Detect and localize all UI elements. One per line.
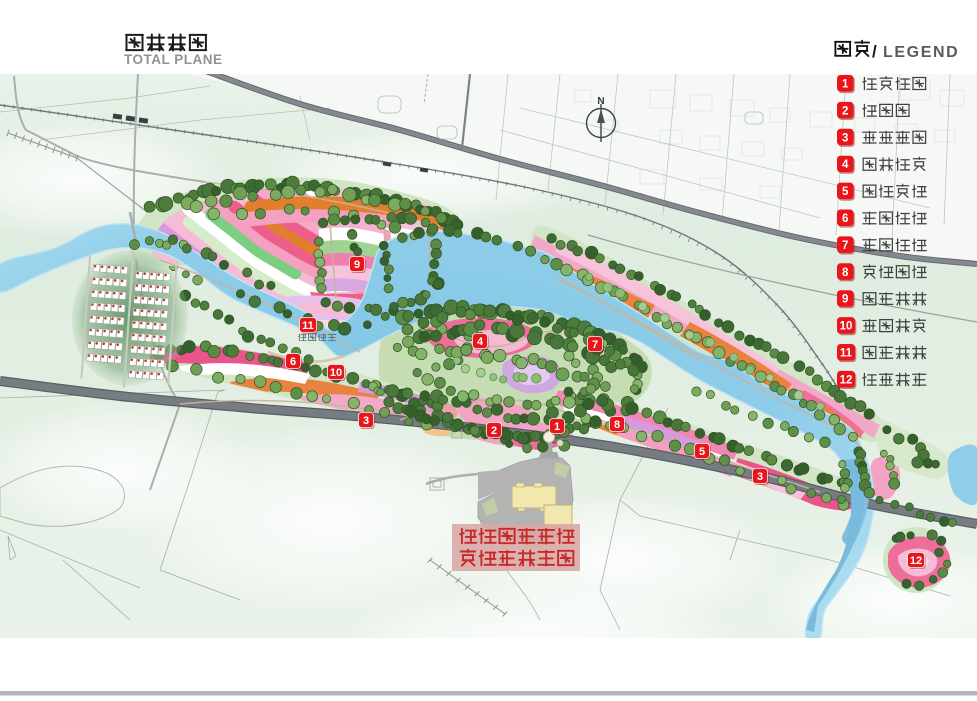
svg-text:2: 2 xyxy=(842,105,848,117)
svg-text:1: 1 xyxy=(554,421,560,433)
svg-text:10: 10 xyxy=(330,367,342,379)
svg-text:7: 7 xyxy=(592,339,598,351)
svg-text:5: 5 xyxy=(842,186,849,198)
svg-text:N: N xyxy=(597,96,604,107)
svg-text:8: 8 xyxy=(842,267,849,279)
svg-text:2: 2 xyxy=(491,425,497,437)
svg-text:9: 9 xyxy=(842,294,848,306)
svg-text:3: 3 xyxy=(363,415,369,427)
svg-text:3: 3 xyxy=(757,471,763,483)
svg-text:8: 8 xyxy=(614,419,620,431)
svg-text:TOTAL PLANE: TOTAL PLANE xyxy=(124,52,223,67)
svg-text:9: 9 xyxy=(354,259,360,271)
svg-text:7: 7 xyxy=(842,240,848,252)
svg-text:6: 6 xyxy=(290,356,296,368)
svg-text:4: 4 xyxy=(842,159,849,171)
svg-text:LEGEND: LEGEND xyxy=(883,44,959,61)
svg-text:11: 11 xyxy=(840,348,853,360)
svg-text:4: 4 xyxy=(477,336,484,348)
svg-text:10: 10 xyxy=(840,321,853,333)
svg-text:12: 12 xyxy=(840,374,853,386)
svg-text:11: 11 xyxy=(302,320,314,332)
svg-text:1: 1 xyxy=(842,79,849,91)
svg-text:/: / xyxy=(872,42,877,61)
svg-text:3: 3 xyxy=(842,132,848,144)
svg-text:5: 5 xyxy=(699,446,705,458)
svg-text:6: 6 xyxy=(842,213,848,225)
svg-text:12: 12 xyxy=(910,555,922,567)
